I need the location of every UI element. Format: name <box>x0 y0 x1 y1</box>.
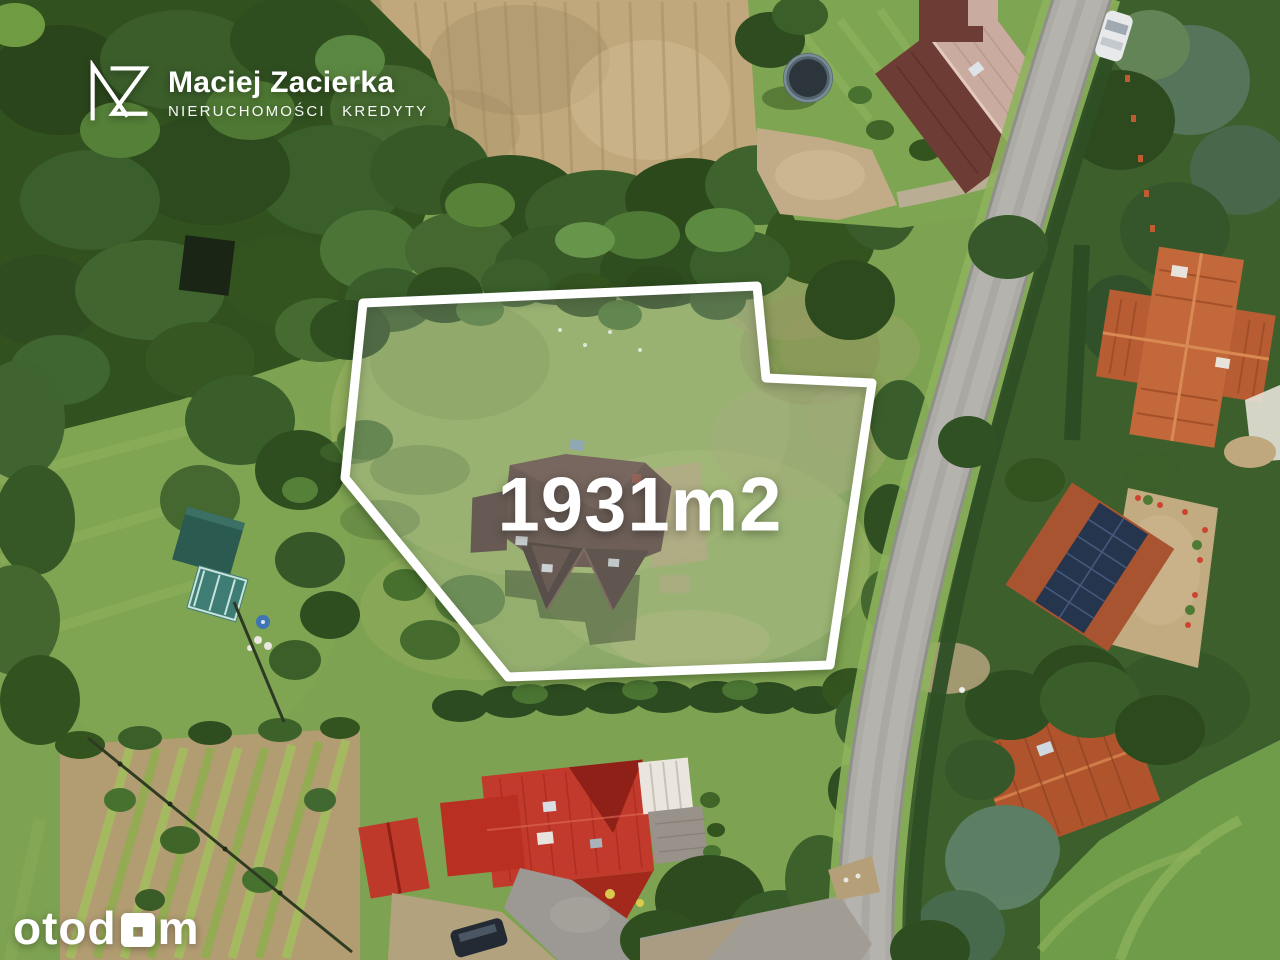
mz-monogram-icon <box>86 60 154 126</box>
otodom-watermark: otod m <box>13 911 200 947</box>
otodom-text-prefix: otod <box>13 911 117 947</box>
plot-area-label: 1931m2 <box>498 462 783 549</box>
otodom-square-icon <box>121 913 155 947</box>
agent-logo-text: Maciej Zacierka NIERUCHOMOŚCI KREDYTY <box>168 66 428 120</box>
otodom-text-suffix: m <box>158 911 200 947</box>
agent-name: Maciej Zacierka <box>168 66 428 99</box>
agent-logo: Maciej Zacierka NIERUCHOMOŚCI KREDYTY <box>86 60 428 126</box>
aerial-photo: 1931m2 Maciej Zacierka NIERUCHOMOŚCI KRE… <box>0 0 1280 960</box>
agent-tagline: NIERUCHOMOŚCI KREDYTY <box>168 103 428 120</box>
